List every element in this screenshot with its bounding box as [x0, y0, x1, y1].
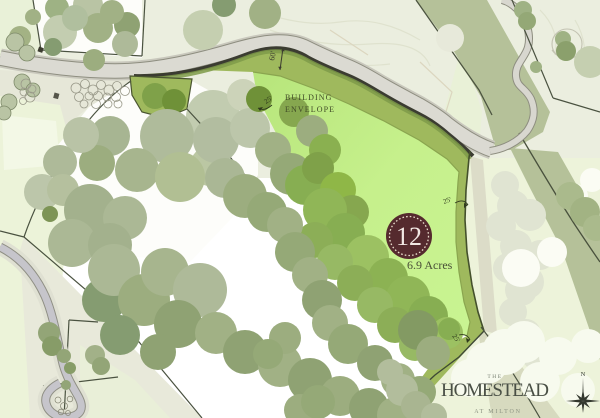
svg-text:AT MILTON: AT MILTON — [474, 409, 522, 415]
svg-text:N: N — [581, 371, 586, 378]
svg-text:12: 12 — [396, 222, 422, 251]
svg-text:6.9 Acres: 6.9 Acres — [407, 258, 453, 272]
svg-text:HOMESTEAD: HOMESTEAD — [441, 380, 549, 401]
svg-text:ENVELOPE: ENVELOPE — [285, 105, 335, 114]
svg-text:BUILDING: BUILDING — [285, 93, 332, 102]
